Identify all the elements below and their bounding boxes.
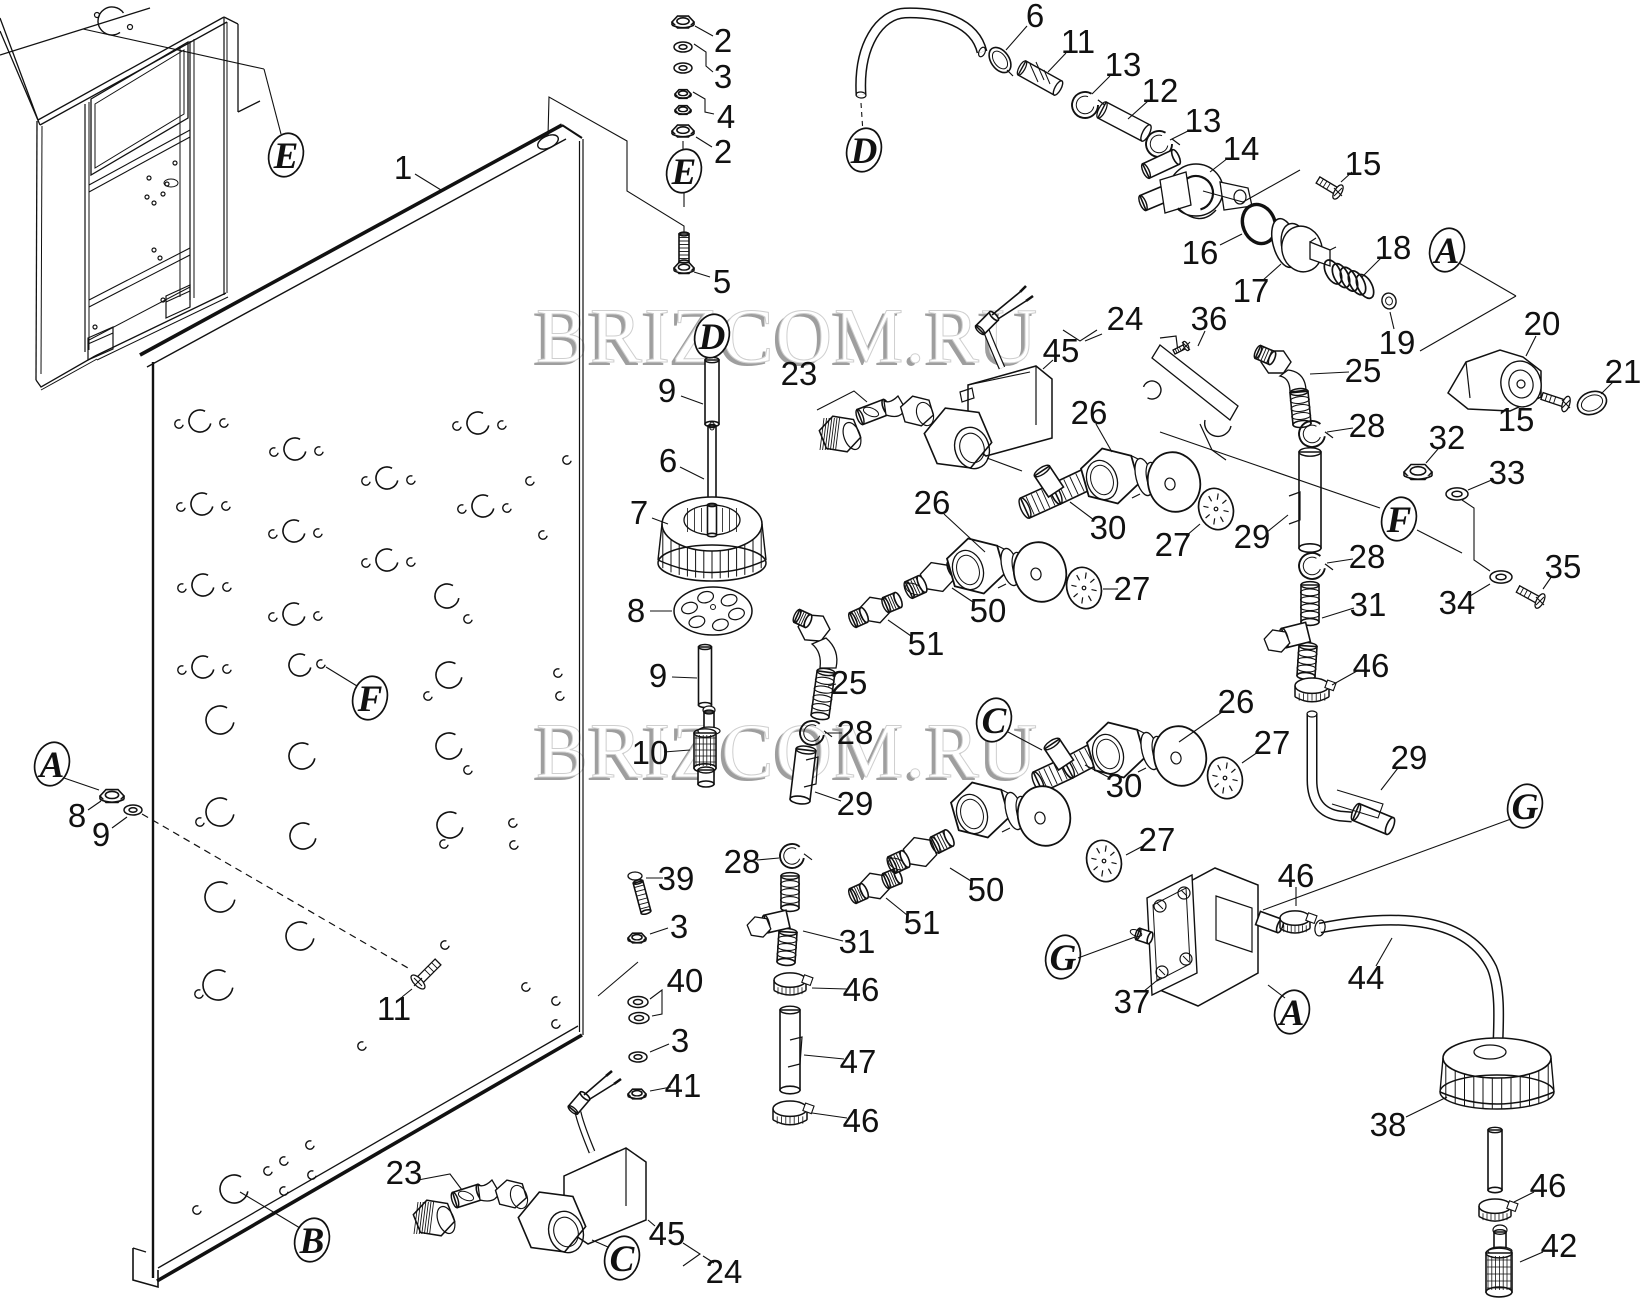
svg-text:D: D <box>850 131 878 172</box>
svg-text:30: 30 <box>1090 509 1127 546</box>
svg-text:A: A <box>1278 993 1305 1034</box>
svg-text:8: 8 <box>68 797 86 834</box>
svg-text:34: 34 <box>1439 584 1476 621</box>
svg-text:13: 13 <box>1105 46 1142 83</box>
svg-text:46: 46 <box>1353 647 1390 684</box>
svg-text:46: 46 <box>843 1102 880 1139</box>
svg-text:31: 31 <box>1350 586 1387 623</box>
svg-text:28: 28 <box>1349 407 1386 444</box>
svg-text:24: 24 <box>706 1253 743 1290</box>
svg-text:9: 9 <box>92 816 110 853</box>
svg-text:33: 33 <box>1489 454 1526 491</box>
svg-text:28: 28 <box>1349 538 1386 575</box>
svg-text:G: G <box>1050 938 1077 979</box>
svg-text:1: 1 <box>394 149 412 186</box>
svg-text:41: 41 <box>665 1067 702 1104</box>
svg-text:37: 37 <box>1114 983 1151 1020</box>
svg-text:47: 47 <box>840 1043 877 1080</box>
svg-text:30: 30 <box>1106 767 1143 804</box>
svg-text:20: 20 <box>1524 305 1561 342</box>
svg-text:19: 19 <box>1379 324 1416 361</box>
svg-text:BRIZCOM.RU: BRIZCOM.RU <box>536 707 1039 794</box>
svg-text:28: 28 <box>724 843 761 880</box>
svg-text:6: 6 <box>659 442 677 479</box>
svg-text:G: G <box>1512 787 1539 828</box>
svg-text:36: 36 <box>1191 300 1228 337</box>
svg-text:46: 46 <box>1530 1167 1567 1204</box>
svg-text:A: A <box>1433 231 1460 272</box>
svg-text:2: 2 <box>714 22 732 59</box>
svg-text:23: 23 <box>781 355 818 392</box>
svg-text:13: 13 <box>1185 102 1222 139</box>
svg-text:40: 40 <box>667 962 704 999</box>
svg-text:C: C <box>982 701 1008 742</box>
svg-text:15: 15 <box>1345 145 1382 182</box>
svg-text:27: 27 <box>1254 724 1291 761</box>
svg-text:26: 26 <box>1071 394 1108 431</box>
svg-text:10: 10 <box>632 734 669 771</box>
svg-text:45: 45 <box>649 1215 686 1252</box>
svg-text:23: 23 <box>386 1154 423 1191</box>
svg-text:2: 2 <box>714 133 732 170</box>
svg-text:14: 14 <box>1223 130 1260 167</box>
svg-text:12: 12 <box>1142 72 1179 109</box>
svg-text:16: 16 <box>1182 234 1219 271</box>
svg-text:39: 39 <box>658 860 695 897</box>
svg-text:3: 3 <box>671 1022 689 1059</box>
svg-text:51: 51 <box>908 625 945 662</box>
svg-text:27: 27 <box>1155 526 1192 563</box>
svg-text:50: 50 <box>968 871 1005 908</box>
svg-text:27: 27 <box>1114 570 1151 607</box>
svg-text:50: 50 <box>970 592 1007 629</box>
svg-text:3: 3 <box>714 58 732 95</box>
svg-text:51: 51 <box>904 904 941 941</box>
svg-text:3: 3 <box>670 908 688 945</box>
svg-text:44: 44 <box>1348 959 1385 996</box>
svg-text:C: C <box>610 1239 636 1280</box>
svg-text:4: 4 <box>717 98 735 135</box>
svg-text:15: 15 <box>1498 401 1535 438</box>
svg-text:E: E <box>273 136 299 177</box>
svg-text:6: 6 <box>1026 0 1044 34</box>
svg-text:38: 38 <box>1370 1106 1407 1143</box>
svg-text:18: 18 <box>1375 229 1412 266</box>
svg-text:F: F <box>357 679 383 720</box>
svg-text:A: A <box>38 745 65 786</box>
svg-text:D: D <box>698 317 726 358</box>
svg-text:25: 25 <box>831 664 868 701</box>
svg-text:11: 11 <box>1061 23 1095 60</box>
svg-text:17: 17 <box>1233 272 1270 309</box>
svg-text:32: 32 <box>1429 419 1466 456</box>
svg-text:9: 9 <box>649 657 667 694</box>
svg-text:27: 27 <box>1139 821 1176 858</box>
svg-text:25: 25 <box>1345 352 1382 389</box>
svg-text:11: 11 <box>377 990 411 1027</box>
svg-text:46: 46 <box>843 971 880 1008</box>
svg-text:42: 42 <box>1541 1227 1578 1264</box>
svg-text:29: 29 <box>1234 518 1271 555</box>
svg-text:31: 31 <box>839 923 876 960</box>
svg-text:5: 5 <box>713 263 731 300</box>
svg-text:F: F <box>1386 500 1412 541</box>
svg-text:E: E <box>671 152 697 193</box>
svg-text:26: 26 <box>1218 683 1255 720</box>
svg-text:7: 7 <box>630 494 648 531</box>
svg-text:8: 8 <box>627 592 645 629</box>
svg-text:29: 29 <box>837 785 874 822</box>
svg-text:24: 24 <box>1107 300 1144 337</box>
svg-text:28: 28 <box>837 714 874 751</box>
svg-text:B: B <box>299 1221 325 1262</box>
svg-text:9: 9 <box>658 372 676 409</box>
